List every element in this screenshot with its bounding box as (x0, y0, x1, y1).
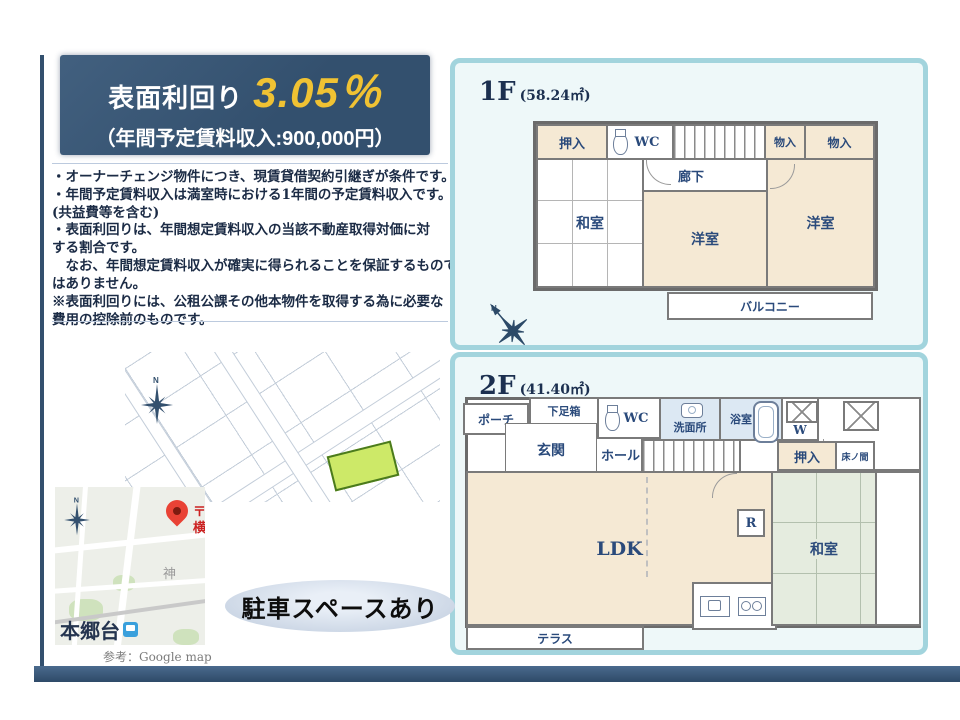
room-washitsu: 和室 (771, 471, 877, 626)
room-wc: WC (597, 397, 661, 439)
yield-rate: 3.05％ (253, 59, 382, 120)
note-line: ・表面利回りは、年間想定賃料収入の当該不動産取得対価に対 (52, 222, 452, 240)
left-rule (40, 55, 44, 667)
fridge-space: R (737, 509, 765, 537)
flyer-page: 表面利回り 3.05％ （年間予定賃料収入:900,000円） ・オーナーチェン… (0, 0, 960, 720)
location-pin-icon (161, 495, 192, 526)
site-map: N (125, 352, 440, 502)
ldk-divider (646, 477, 648, 577)
floor1-name: 1F (479, 77, 516, 107)
svg-text:N: N (153, 376, 159, 385)
door-arc (712, 473, 737, 498)
parking-badge-label: 駐車スペースあり (241, 589, 438, 624)
washer-cross-icon (786, 401, 818, 423)
balcony: バルコニー (667, 292, 873, 320)
note-line: はありません。 (52, 276, 452, 294)
toilet-icon (605, 409, 620, 431)
disclaimer-notes: ・オーナーチェンジ物件につき、現賃貸借契約引継ぎが条件です。 ・年間予定賃料収入… (52, 169, 452, 329)
floor1-title: 1F (58.24㎡) (479, 77, 591, 107)
room-wc: WC (606, 124, 674, 160)
room-washitsu: 和室 (536, 158, 644, 288)
floor1-plan: 押入 WC 物入 物入 和室 洋室 洋室 廊下 (533, 121, 878, 291)
map-district-text: 神 (163, 563, 176, 582)
map-address-text: 横 (193, 521, 205, 534)
room-monoire: 物入 (804, 124, 875, 160)
google-map: 〒 横 神 N 本郷台 (55, 487, 205, 645)
train-station-icon (123, 622, 138, 637)
room-monoire: 物入 (764, 124, 806, 160)
svg-text:N: N (74, 495, 79, 504)
note-line: (共益費等を含む) (52, 205, 452, 223)
map-park (173, 629, 199, 645)
room-youshitsu-center: 洋室 (642, 190, 768, 288)
room-senmenjo: 洗面所 (659, 397, 721, 441)
floor2-area: (41.40㎡) (520, 379, 591, 399)
washbasin-icon (681, 403, 703, 418)
room-ldk: LDK (466, 471, 773, 626)
floor1-area: (58.24㎡) (520, 85, 591, 105)
room-shoebox: 下足箱 (529, 397, 599, 425)
yield-label: 表面利回り (108, 78, 243, 115)
door-arc (646, 160, 671, 185)
yield-header-box: 表面利回り 3.05％ （年間予定賃料収入:900,000円） (60, 55, 430, 155)
note-line: する割合です。 (52, 240, 452, 258)
note-line: ・年間予定賃料収入は満室時における1年間の予定賃料収入です。 (52, 187, 452, 205)
note-line: ・オーナーチェンジ物件につき、現賃貸借契約引継ぎが条件です。 (52, 169, 452, 187)
parking-badge: 駐車スペースあり (225, 580, 455, 632)
station-name: 本郷台 (60, 615, 120, 644)
room-washer: W (781, 397, 819, 441)
compass-icon: N (485, 301, 541, 357)
room-tokonoma: 床ノ間 (835, 441, 875, 471)
floor1-panel: 1F (58.24㎡) 押入 WC 物入 物入 和室 洋 (450, 58, 928, 350)
compass-icon: N (137, 374, 177, 426)
engawa-strip (875, 471, 921, 626)
room-oshiire: 押入 (536, 124, 608, 160)
closet-cross-icon (843, 401, 879, 431)
compass-icon: N (61, 495, 93, 537)
bottom-bar (34, 666, 960, 682)
room-rouka-label: 廊下 (678, 166, 704, 185)
room-oshiire: 押入 (777, 441, 837, 471)
toilet-icon (613, 133, 628, 155)
yield-sub: （年間予定賃料収入:900,000円） (96, 122, 395, 151)
note-line: なお、年間想定賃料収入が確実に得られることを保証するもので (52, 258, 452, 276)
bathtub-icon (753, 401, 779, 443)
map-address-text: 〒 (193, 505, 205, 518)
floor2-plan: ポーチ 下足箱 WC 洗面所 浴室 W (463, 397, 921, 651)
room-genkan: 玄関 (505, 423, 597, 477)
floor2-panel: 2F (41.40㎡) ポーチ 下足箱 WC 洗面所 浴室 (450, 352, 928, 655)
room-yokushitsu: 浴室 (719, 397, 783, 441)
room-hall-label: ホール (601, 445, 640, 464)
kitchen-sink-icon (700, 596, 730, 617)
notes-top-rule (52, 163, 448, 164)
stove-icon (738, 597, 766, 616)
station-label: 本郷台 (60, 615, 138, 644)
kitchen-counter (692, 582, 777, 630)
staircase (672, 124, 766, 160)
map-caption: 参考：Google map (103, 648, 212, 665)
notes-bottom-rule (52, 321, 448, 322)
note-line: ※表面利回りには、公租公課その他本物件を取得する為に必要な (52, 294, 452, 312)
terrace: テラス (466, 626, 644, 650)
svg-text:N: N (491, 304, 497, 313)
